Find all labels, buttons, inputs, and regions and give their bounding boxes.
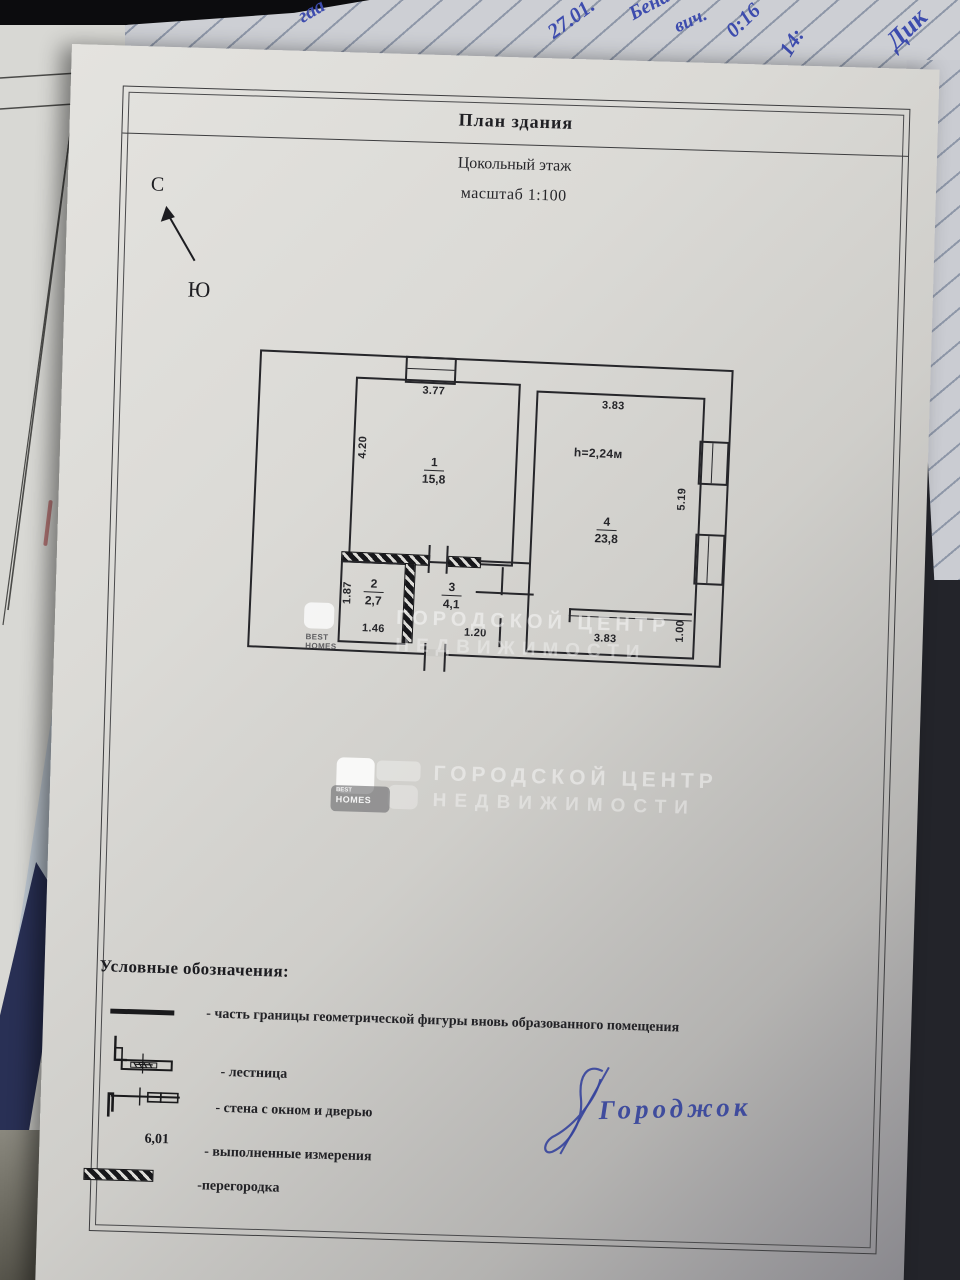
partition-symbol (83, 1168, 153, 1182)
room-3-number: 3 (441, 580, 462, 597)
watermark-brand-badge: BEST HOMES (330, 785, 390, 813)
watermark-text-line2: НЕДВИЖИМОСТИ (432, 790, 696, 820)
brand-homes: HOMES (305, 641, 337, 651)
legend-item-boundary: - часть границы геометрической фигуры вн… (206, 1003, 716, 1039)
wall-window-door-symbol (101, 1084, 186, 1126)
dimension-landing-depth: 1.00 (674, 620, 687, 643)
dimension-room2-left: 1.87 (341, 581, 354, 604)
room-2-label: 2 2,7 (355, 576, 392, 609)
measurement-example-value: 6,01 (144, 1132, 169, 1149)
page-title: План здания (458, 109, 573, 133)
compass-north-label: С (151, 173, 165, 196)
room-1-label: 1 15,8 (408, 454, 459, 487)
room-2-area: 2,7 (355, 592, 392, 609)
room-4-area: 23,8 (584, 530, 629, 547)
partition-wall-vertical (401, 563, 415, 643)
partition-wall-top-b (448, 556, 481, 568)
dimension-room2-bottom: 1.46 (362, 622, 385, 635)
signature-text: Городжок (598, 1092, 751, 1126)
door-swing-line (476, 591, 534, 596)
room-4-number: 4 (596, 514, 617, 531)
room-1-number: 1 (424, 455, 445, 472)
document-page: План здания Цокольный этаж масштаб 1:100… (35, 44, 940, 1280)
legend-item-partition: -перегородка (197, 1175, 280, 1198)
photo-of-floor-plan-document: гаа дм 27.01. Бена вич. 0:16 14: Дик (01… (0, 0, 960, 1280)
watermark-brand-text: BEST HOMES (305, 632, 337, 651)
compass-south-label: Ю (187, 277, 210, 304)
watermark-logo-square-small (387, 785, 418, 810)
window-symbol-right-2 (693, 534, 725, 586)
dimension-room1-top: 3.77 (422, 385, 445, 398)
brand-homes: HOMES (336, 794, 372, 805)
title-band: План здания (122, 87, 909, 157)
ceiling-height-note: h=2,24м (574, 445, 623, 461)
compass-arrow-icon (156, 204, 204, 267)
dimension-room4-right: 5.19 (676, 488, 689, 511)
legend-title: Условные обозначения: (99, 956, 289, 982)
brand-best: BEST (305, 632, 328, 642)
stairs-symbol (106, 1032, 185, 1076)
legend-item-wall-window-door: - стена с окном и дверью (215, 1098, 373, 1124)
watermark-logo-square (304, 602, 335, 629)
wall-room3-upper (501, 567, 504, 595)
legend-item-stairs: - лестница (220, 1062, 287, 1085)
boundary-line-symbol (110, 1009, 174, 1016)
dimension-room4-top: 3.83 (602, 399, 625, 412)
room-4-label: 4 23,8 (584, 514, 629, 547)
brand-best: BEST (336, 787, 352, 793)
watermark-text-line1: ГОРОДСКОЙ ЦЕНТР (433, 762, 718, 794)
room-1-area: 15,8 (408, 470, 459, 487)
dimension-room1-left: 4.20 (356, 436, 369, 459)
room-2-number: 2 (363, 576, 384, 593)
room-3-label: 3 4,1 (433, 579, 470, 612)
window-symbol-right-1 (698, 441, 730, 486)
legend-item-measurements: - выполненные измерения (204, 1141, 372, 1167)
document-border-frame: План здания Цокольный этаж масштаб 1:100… (89, 86, 911, 1255)
watermark-logo-rect (376, 760, 421, 781)
